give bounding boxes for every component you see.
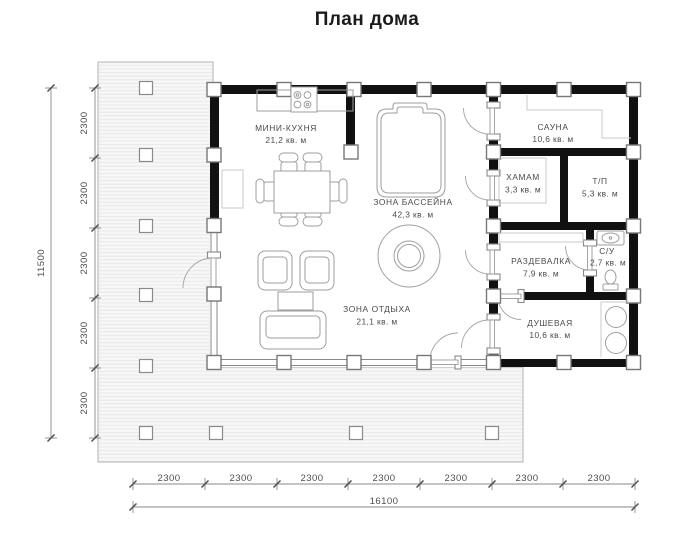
label-sauna: САУНА [537, 122, 568, 132]
label-wc: С/У [599, 246, 615, 256]
label-shower: ДУШЕВАЯ [527, 318, 573, 328]
label-dressing: РАЗДЕВАЛКА [511, 256, 571, 266]
area-pool-zone: 42,3 кв. м [392, 210, 433, 220]
dim-left-3: 2300 [79, 322, 90, 345]
dim-left-4: 2300 [79, 392, 90, 415]
dim-left-total: 11500 [36, 249, 47, 277]
dim-left-0: 2300 [79, 112, 90, 135]
dim-bottom-3: 2300 [373, 473, 396, 484]
wall-sauna-south [493, 148, 638, 156]
wall-dressing-south [521, 292, 638, 300]
dim-bottom-6: 2300 [588, 473, 611, 484]
label-hamam: ХАМАМ [506, 172, 540, 182]
stove [291, 87, 317, 112]
area-lounge-zone: 21,1 кв. м [356, 317, 397, 327]
dim-bottom-1: 2300 [230, 473, 253, 484]
wall-wc-west-b [586, 276, 594, 292]
dim-left-2: 2300 [79, 252, 90, 275]
area-wc: 2,7 кв. м [590, 258, 626, 268]
label-tp: Т/П [592, 176, 607, 186]
label-lounge-zone: ЗОНА ОТДЫХА [343, 304, 411, 314]
dimension-bottom: 2300 2300 2300 2300 2300 2300 2300 16100 [130, 473, 639, 513]
railing-west-b [211, 301, 217, 356]
dining-table [274, 171, 330, 213]
area-mini-kitchen: 21,2 кв. м [265, 135, 306, 145]
page-title: План дома [315, 9, 419, 30]
dim-bottom-4: 2300 [445, 473, 468, 484]
wall-hamam-tp-divider [560, 156, 568, 222]
dim-bottom-total: 16100 [370, 496, 399, 507]
wall-hamam-south [493, 222, 638, 230]
dim-bottom-0: 2300 [158, 473, 181, 484]
floor-plan-page: План дома [0, 0, 699, 546]
dimension-left: 2300 2300 2300 2300 2300 11500 [36, 85, 101, 442]
railing-south-a [217, 360, 430, 366]
wall-wc-west-a [586, 230, 594, 240]
wall-kitchen-partition [346, 94, 355, 145]
railing-south-b [461, 360, 487, 366]
label-mini-kitchen: МИНИ-КУХНЯ [255, 123, 317, 133]
label-pool-zone: ЗОНА БАССЕЙНА [373, 196, 452, 207]
area-dressing: 7,9 кв. м [523, 269, 559, 279]
dim-bottom-5: 2300 [516, 473, 539, 484]
area-shower: 10,6 кв. м [529, 330, 570, 340]
floor-plan-canvas: План дома [0, 0, 699, 546]
area-tp: 5,3 кв. м [582, 189, 618, 199]
dim-left-1: 2300 [79, 182, 90, 205]
area-sauna: 10,6 кв. м [532, 134, 573, 144]
dim-bottom-2: 2300 [301, 473, 324, 484]
area-hamam: 3,3 кв. м [505, 185, 541, 195]
